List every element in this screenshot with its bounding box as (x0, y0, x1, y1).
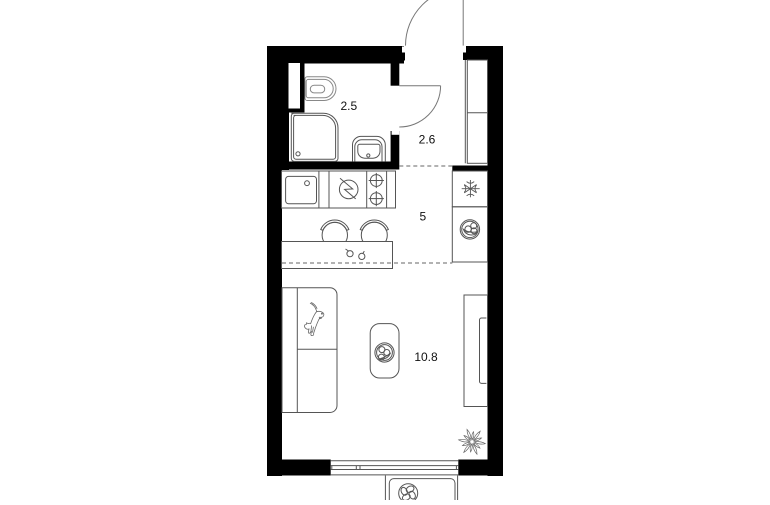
svg-text:2.5: 2.5 (340, 99, 357, 113)
svg-text:2.6: 2.6 (419, 132, 436, 146)
svg-text:5: 5 (420, 210, 427, 224)
svg-text:10.8: 10.8 (414, 350, 438, 364)
